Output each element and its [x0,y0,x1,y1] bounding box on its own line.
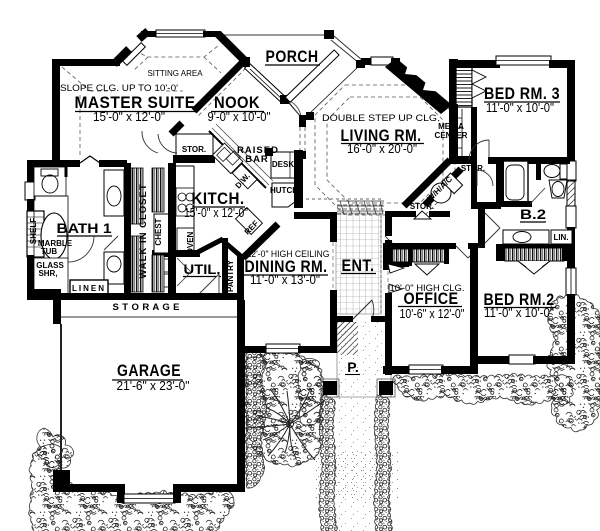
svg-text:STOR.: STOR. [461,164,485,173]
svg-text:DOUBLE STEP UP CLG.: DOUBLE STEP UP CLG. [322,113,440,123]
svg-text:HUTCH: HUTCH [270,186,298,195]
svg-text:BATH 1: BATH 1 [57,220,112,236]
svg-text:STOR.: STOR. [182,145,206,154]
svg-text:SHELF: SHELF [29,218,38,244]
svg-text:11'-0" x 10'-0": 11'-0" x 10'-0" [486,101,554,115]
svg-text:15'-0" x 12'-0": 15'-0" x 12'-0" [93,110,165,124]
svg-text:WALK IN CLOSET: WALK IN CLOSET [138,183,149,278]
svg-text:P.: P. [347,359,358,375]
svg-text:ENT.: ENT. [342,256,375,275]
svg-text:CHEST: CHEST [154,218,163,245]
svg-text:UTIL.: UTIL. [184,261,221,277]
svg-text:STOR.: STOR. [410,202,434,211]
svg-text:B.2: B.2 [520,206,546,222]
svg-text:DESK: DESK [272,160,294,169]
svg-text:OFFICE: OFFICE [404,289,459,308]
svg-text:SLOPE CLG. UP TO 10'-0': SLOPE CLG. UP TO 10'-0' [60,83,178,93]
svg-text:SHR,: SHR, [38,269,57,278]
svg-text:GARAGE: GARAGE [117,361,181,380]
svg-text:15'-0" x 12'-0": 15'-0" x 12'-0" [184,206,248,220]
svg-text:21'-6" x 23'-0": 21'-6" x 23'-0" [117,379,190,393]
svg-text:10'-6" x 12'-0": 10'-6" x 12'-0" [400,307,465,321]
svg-text:16'-0" x 20'-0": 16'-0" x 20'-0" [347,142,417,156]
svg-text:CENTER: CENTER [435,131,468,140]
svg-text:LIN.: LIN. [553,233,568,242]
svg-text:9'-0" x 10'-0": 9'-0" x 10'-0" [208,110,271,124]
svg-text:11'-0" x 13'-0": 11'-0" x 13'-0" [250,273,320,287]
svg-text:PANTRY: PANTRY [226,259,235,292]
svg-text:TUB: TUB [41,247,58,256]
svg-text:S T O R A G E: S T O R A G E [113,302,180,313]
svg-text:PORCH: PORCH [266,47,319,66]
svg-text:SITTING AREA: SITTING AREA [147,69,203,78]
svg-text:MEDIA: MEDIA [438,122,464,131]
svg-text:LINEN: LINEN [72,284,106,293]
svg-text:BAR: BAR [245,154,269,165]
svg-text:11'-0" x 10'-0": 11'-0" x 10'-0" [484,306,554,320]
